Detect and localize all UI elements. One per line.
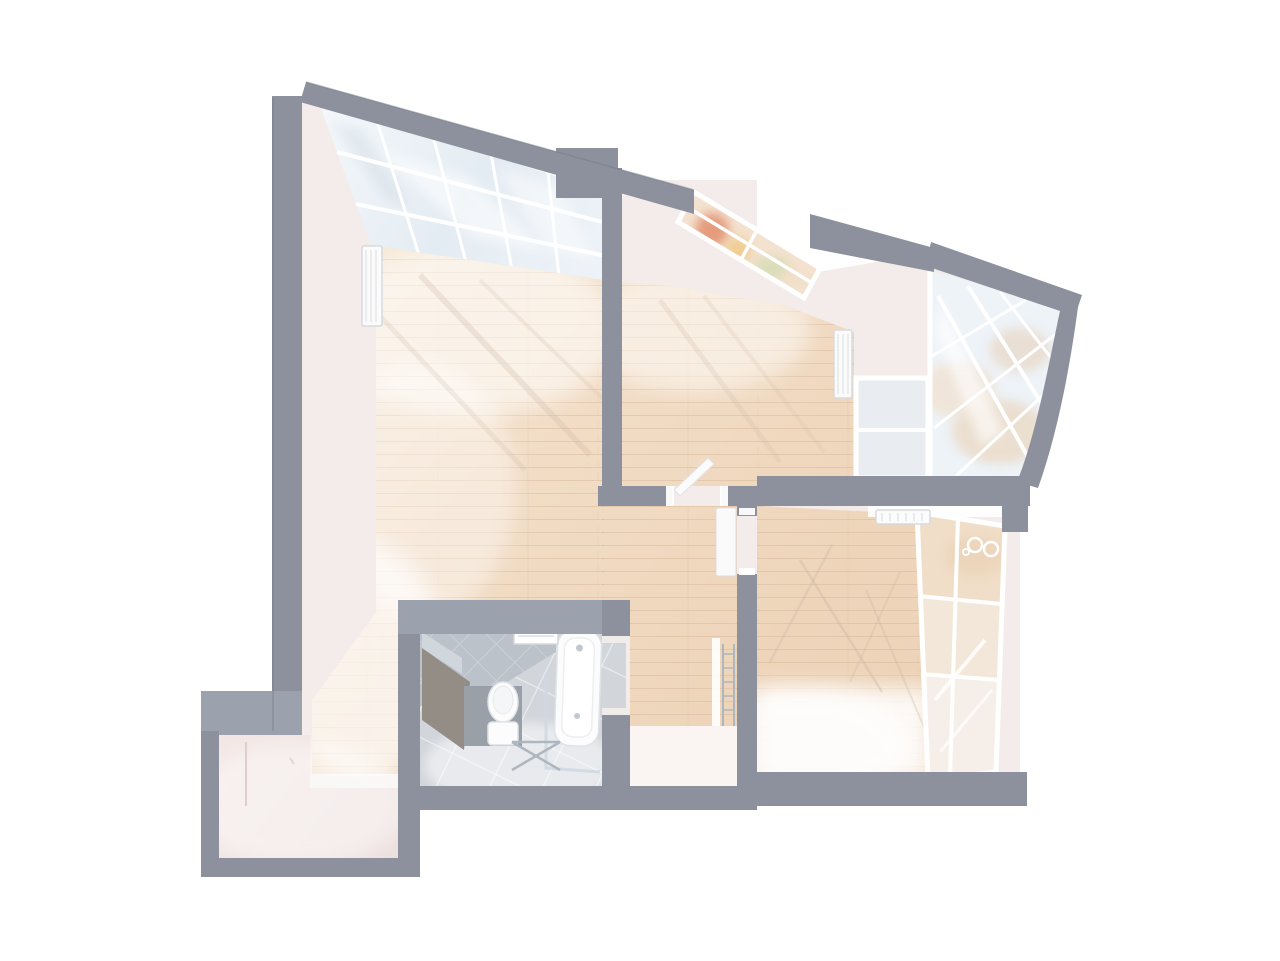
bathroom: [420, 628, 626, 807]
floorplan-stage: [0, 0, 1280, 961]
wall-bathroom-east-lower: [602, 714, 630, 788]
corridor-door-frame: [712, 638, 720, 726]
wall-bathroom-east-upper: [602, 600, 630, 642]
toilet: [488, 682, 518, 745]
wall-entry-step: [201, 691, 302, 735]
bathroom-door-jamb-bottom: [602, 708, 630, 715]
wall-bedroom-north-south-a: [598, 486, 672, 506]
bedroom-east-door-jamb-bottom: [739, 568, 755, 575]
wall-outer-west: [272, 96, 302, 731]
corridor-lower-floor: [630, 726, 737, 788]
wall-bedroom-east-south: [757, 772, 1027, 806]
wall-bedroom-east-north: [757, 476, 1030, 506]
entry-light-wash: [190, 743, 410, 867]
wall-south-band: [398, 786, 757, 810]
wall-entry-south: [201, 858, 420, 877]
living-room-radiator: [362, 246, 382, 326]
wall-east-stub: [1002, 506, 1028, 532]
bedroom-east-open-door-leaf: [716, 508, 736, 576]
wall-entry-west: [201, 731, 219, 877]
bathroom-door-jamb-top: [602, 636, 630, 643]
bedroom-north-door-jamb-left: [666, 486, 674, 506]
bedroom-to-winter-garden-window: [856, 378, 928, 478]
wall-living-bedroom-divider: [602, 168, 622, 490]
wall-bedroom-east-west-b: [737, 574, 757, 792]
corridor-planks: [630, 634, 737, 726]
floorplan-render: [0, 0, 1280, 961]
wall-bathroom-west: [398, 600, 420, 877]
bathtub: [554, 629, 602, 746]
bedroom-north-door-jamb-right: [720, 486, 728, 506]
bedroom-north-radiator: [834, 330, 852, 398]
bedroom-east-door-jamb-top: [739, 508, 755, 515]
wall-bathroom-north: [398, 600, 604, 634]
bedroom-east-radiator: [876, 510, 930, 524]
